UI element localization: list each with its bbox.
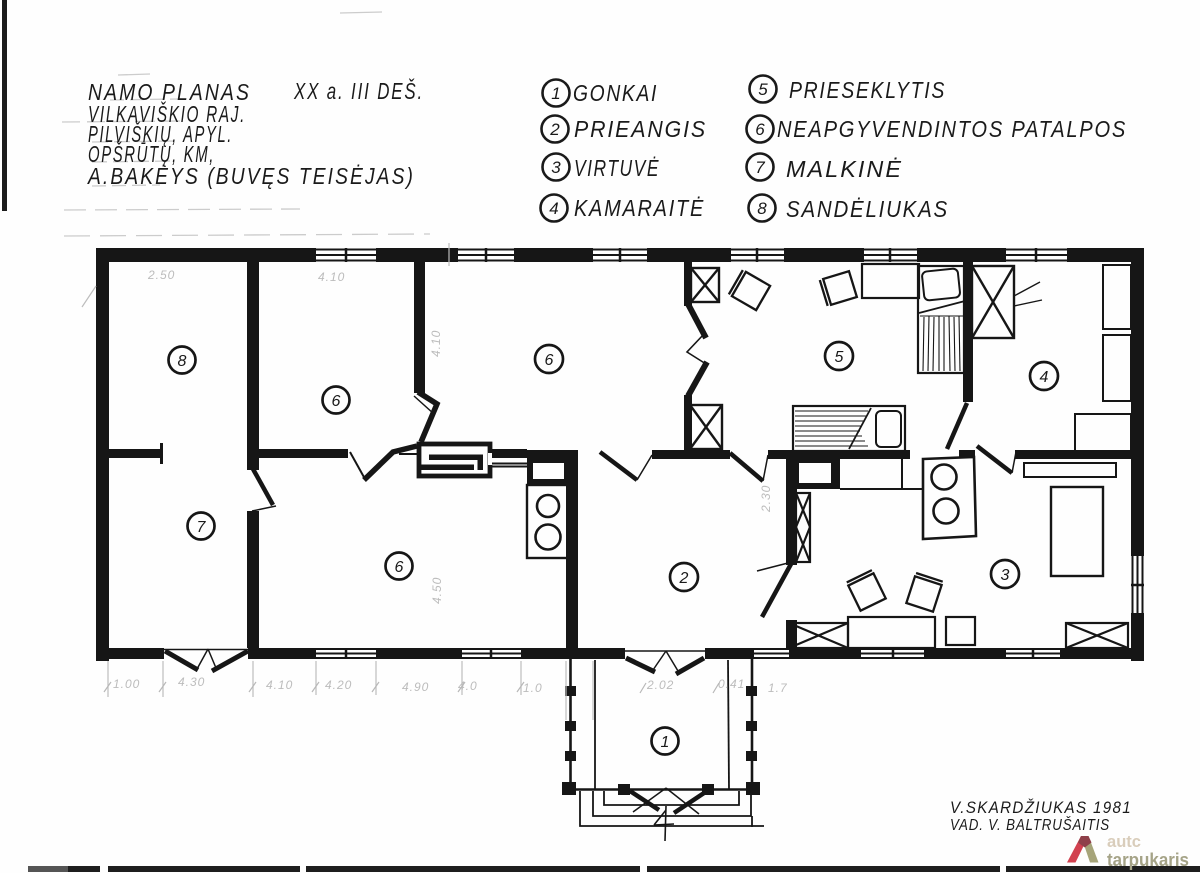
svg-text:3: 3 <box>551 158 561 177</box>
svg-text:8: 8 <box>178 353 187 370</box>
svg-text:NEAPGYVENDINTOS PATALPOS: NEAPGYVENDINTOS PATALPOS <box>777 116 1127 142</box>
svg-text:autc: autc <box>1107 832 1141 851</box>
svg-text:VIRTUVĖ: VIRTUVĖ <box>574 155 660 181</box>
svg-text:1.00: 1.00 <box>113 677 140 691</box>
svg-text:2: 2 <box>679 570 689 587</box>
svg-text:4: 4 <box>1040 369 1049 386</box>
svg-text:7: 7 <box>197 519 207 536</box>
svg-text:4.90: 4.90 <box>402 680 429 694</box>
svg-text:tarpukaris: tarpukaris <box>1107 850 1189 870</box>
svg-text:6: 6 <box>545 352 554 369</box>
svg-text:4.30: 4.30 <box>178 675 205 689</box>
svg-text:PRIEANGIS: PRIEANGIS <box>574 116 707 142</box>
svg-text:1.7: 1.7 <box>768 681 788 695</box>
svg-text:4.10: 4.10 <box>266 678 293 692</box>
svg-text:2.30: 2.30 <box>759 485 773 513</box>
svg-text:1: 1 <box>661 734 670 751</box>
svg-text:MALKINĖ: MALKINĖ <box>786 156 903 182</box>
svg-text:5: 5 <box>835 349 844 366</box>
svg-text:6: 6 <box>332 393 341 410</box>
svg-text:4.10: 4.10 <box>318 270 345 284</box>
svg-text:6: 6 <box>755 120 765 139</box>
svg-text:2: 2 <box>549 120 560 139</box>
svg-text:KAMARAITĖ: KAMARAITĖ <box>574 195 705 221</box>
svg-text:VAD. V. BALTRUŠAITIS: VAD. V. BALTRUŠAITIS <box>950 815 1110 834</box>
svg-text:7: 7 <box>755 158 765 177</box>
svg-text:3: 3 <box>1001 567 1010 584</box>
svg-text:2.02: 2.02 <box>646 678 674 692</box>
svg-text:6: 6 <box>395 559 404 576</box>
svg-text:SANDĖLIUKAS: SANDĖLIUKAS <box>786 196 949 222</box>
svg-text:PRIESEKLYTIS: PRIESEKLYTIS <box>789 77 946 103</box>
svg-text:4.0: 4.0 <box>458 679 478 693</box>
svg-text:GONKAI: GONKAI <box>573 80 658 106</box>
svg-text:1.0: 1.0 <box>523 681 543 695</box>
svg-text:8: 8 <box>757 199 767 218</box>
svg-text:2.50: 2.50 <box>147 268 175 282</box>
svg-text:4.50: 4.50 <box>430 577 444 604</box>
svg-text:4: 4 <box>549 199 558 218</box>
svg-text:4.20: 4.20 <box>325 678 352 692</box>
svg-text:XX a. III DEŠ.: XX a. III DEŠ. <box>293 77 424 104</box>
svg-text:5: 5 <box>758 80 768 99</box>
svg-text:0.41: 0.41 <box>718 677 745 691</box>
svg-text:A.BAKĖYS (BUVĘS TEISĖJAS): A.BAKĖYS (BUVĘS TEISĖJAS) <box>86 163 415 189</box>
svg-text:1: 1 <box>551 84 560 103</box>
svg-text:V.SKARDŽIUKAS 1981: V.SKARDŽIUKAS 1981 <box>950 798 1132 817</box>
svg-text:4.10: 4.10 <box>429 330 443 357</box>
